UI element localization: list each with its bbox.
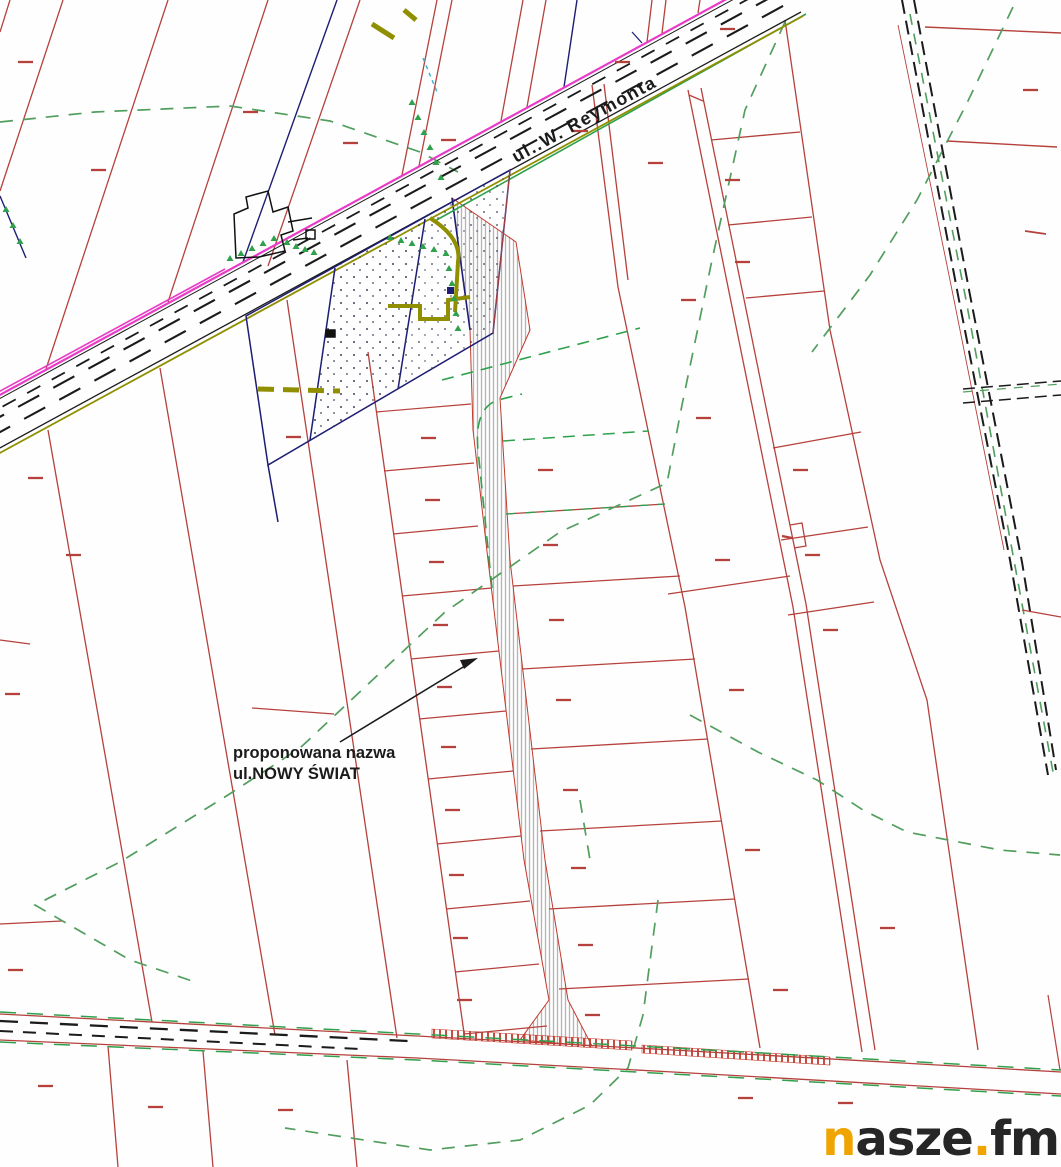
parcel-lines-southwest <box>0 300 465 1167</box>
watermark-dot: . <box>973 1111 990 1167</box>
right-diagonal-boundary <box>898 0 1061 1070</box>
annotation-line2: ul.NOWY ŚWIAT <box>233 764 360 783</box>
annotation-label: proponowana nazwa ul.NOWY ŚWIAT <box>233 744 396 783</box>
bottom-road <box>0 1012 1061 1096</box>
watermark-part-asze: asze <box>855 1111 972 1167</box>
corridor-track <box>688 88 875 1052</box>
cadastral-map: ul..W. Reymonta proponowana nazwa ul.NOW… <box>0 0 1061 1167</box>
contour-lines <box>0 7 1060 1150</box>
watermark-part-fm: fm <box>990 1111 1059 1167</box>
map-canvas: ul..W. Reymonta proponowana nazwa ul.NOW… <box>0 0 1061 1167</box>
east-ladder <box>711 20 978 1050</box>
watermark-logo: nasze.fm <box>822 1115 1059 1163</box>
watermark-part-n: n <box>822 1111 855 1167</box>
annotation-arrow <box>340 658 478 742</box>
annotation-line1: proponowana nazwa <box>233 744 396 762</box>
